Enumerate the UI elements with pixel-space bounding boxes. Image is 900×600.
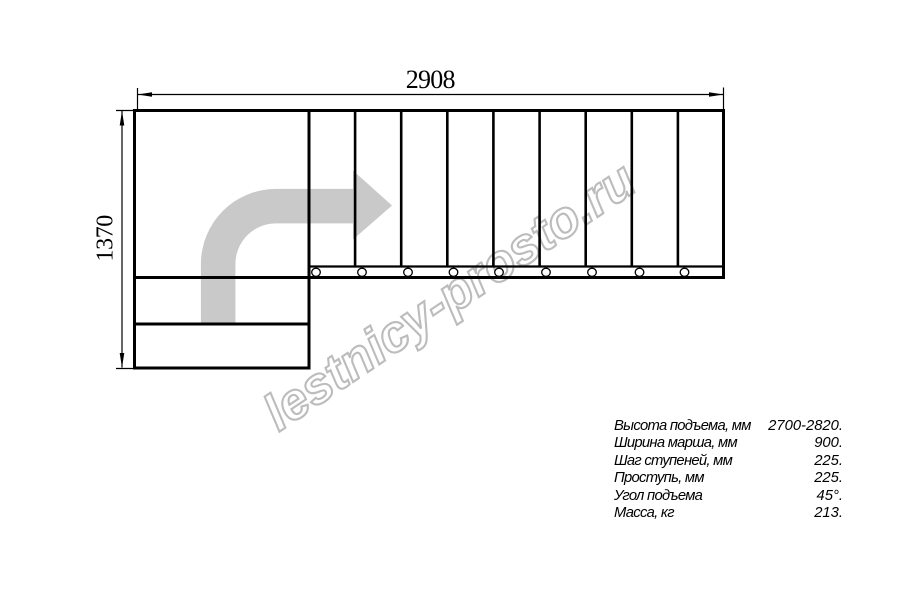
svg-text:1370: 1370 [93,215,119,262]
svg-text:2908: 2908 [406,65,456,94]
